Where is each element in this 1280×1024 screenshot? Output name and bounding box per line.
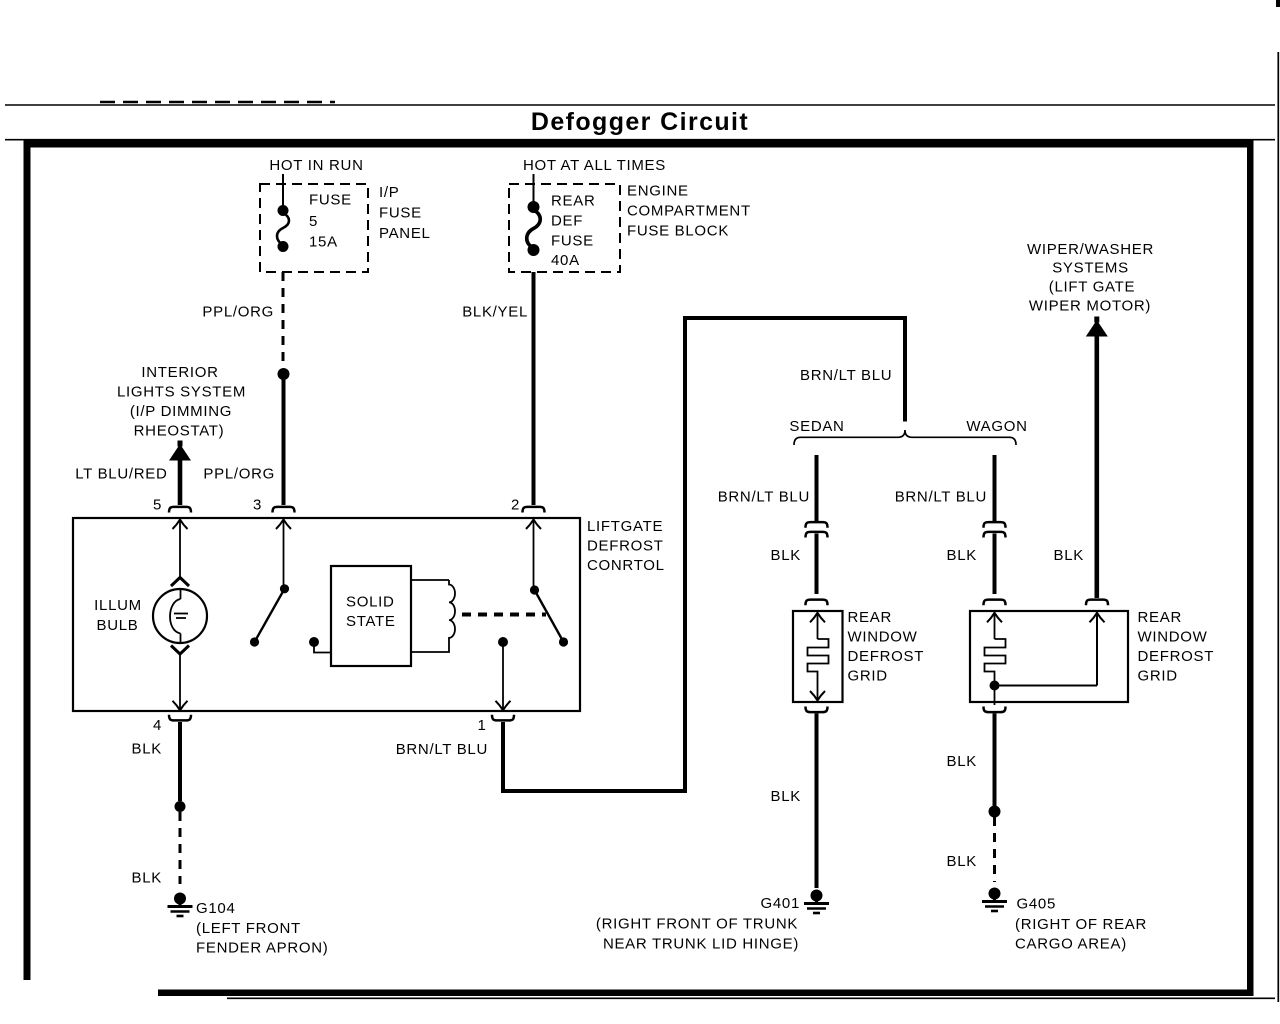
svg-text:G104: G104 bbox=[196, 900, 236, 917]
svg-text:REAR: REAR bbox=[1138, 609, 1182, 626]
svg-text:WINDOW: WINDOW bbox=[848, 628, 918, 645]
svg-text:5: 5 bbox=[309, 213, 318, 230]
svg-text:FENDER APRON): FENDER APRON) bbox=[196, 940, 328, 957]
svg-text:5: 5 bbox=[153, 497, 162, 514]
svg-text:BULB: BULB bbox=[97, 617, 139, 634]
svg-text:SEDAN: SEDAN bbox=[789, 418, 844, 435]
svg-text:LIGHTS SYSTEM: LIGHTS SYSTEM bbox=[117, 384, 246, 401]
svg-text:2: 2 bbox=[511, 497, 520, 514]
svg-text:15A: 15A bbox=[309, 234, 338, 251]
svg-text:WAGON: WAGON bbox=[966, 418, 1027, 435]
svg-text:GRID: GRID bbox=[1138, 668, 1178, 685]
svg-text:(LEFT FRONT: (LEFT FRONT bbox=[196, 920, 301, 937]
svg-text:BLK: BLK bbox=[771, 547, 801, 564]
svg-text:BLK: BLK bbox=[947, 547, 977, 564]
svg-text:RHEOSTAT): RHEOSTAT) bbox=[134, 423, 225, 440]
svg-text:LT BLU/RED: LT BLU/RED bbox=[75, 466, 167, 483]
svg-text:BLK: BLK bbox=[132, 741, 162, 758]
svg-text:FUSE: FUSE bbox=[379, 205, 422, 222]
svg-text:REAR: REAR bbox=[551, 193, 595, 210]
svg-text:(LIFT GATE: (LIFT GATE bbox=[1049, 279, 1135, 296]
svg-text:FUSE: FUSE bbox=[309, 192, 352, 209]
svg-text:PPL/ORG: PPL/ORG bbox=[203, 466, 275, 483]
svg-text:REAR: REAR bbox=[848, 609, 892, 626]
svg-text:I/P: I/P bbox=[379, 184, 399, 201]
svg-text:3: 3 bbox=[253, 497, 262, 514]
svg-text:SOLID: SOLID bbox=[346, 593, 395, 610]
svg-text:BRN/LT BLU: BRN/LT BLU bbox=[718, 489, 810, 506]
svg-text:LIFTGATE: LIFTGATE bbox=[587, 518, 663, 535]
svg-text:BLK: BLK bbox=[1054, 547, 1084, 564]
svg-text:SYSTEMS: SYSTEMS bbox=[1052, 260, 1129, 277]
svg-text:(RIGHT FRONT OF TRUNK: (RIGHT FRONT OF TRUNK bbox=[596, 916, 798, 933]
svg-text:CONRTOL: CONRTOL bbox=[587, 557, 665, 574]
svg-text:HOT IN RUN: HOT IN RUN bbox=[269, 157, 363, 174]
svg-text:NEAR TRUNK LID HINGE): NEAR TRUNK LID HINGE) bbox=[603, 936, 799, 953]
svg-text:PANEL: PANEL bbox=[379, 225, 431, 242]
svg-text:BRN/LT BLU: BRN/LT BLU bbox=[800, 367, 892, 384]
svg-text:HOT AT ALL TIMES: HOT AT ALL TIMES bbox=[523, 157, 666, 174]
svg-text:INTERIOR: INTERIOR bbox=[141, 364, 218, 381]
svg-text:WINDOW: WINDOW bbox=[1138, 628, 1208, 645]
svg-text:WIPER MOTOR): WIPER MOTOR) bbox=[1029, 298, 1151, 315]
svg-text:40A: 40A bbox=[551, 252, 580, 269]
svg-text:(RIGHT OF REAR: (RIGHT OF REAR bbox=[1015, 916, 1147, 933]
svg-text:FUSE: FUSE bbox=[551, 233, 594, 250]
svg-text:ENGINE: ENGINE bbox=[627, 183, 689, 200]
svg-text:PPL/ORG: PPL/ORG bbox=[202, 304, 274, 321]
svg-text:ILLUM: ILLUM bbox=[94, 597, 142, 614]
svg-text:WIPER/WASHER: WIPER/WASHER bbox=[1027, 241, 1154, 258]
svg-text:STATE: STATE bbox=[346, 613, 396, 630]
svg-text:(I/P DIMMING: (I/P DIMMING bbox=[130, 403, 232, 420]
svg-text:DEFROST: DEFROST bbox=[848, 648, 925, 665]
svg-text:G405: G405 bbox=[1017, 896, 1057, 913]
svg-text:BRN/LT BLU: BRN/LT BLU bbox=[895, 489, 987, 506]
svg-text:DEF: DEF bbox=[551, 213, 583, 230]
svg-text:Defogger Circuit: Defogger Circuit bbox=[531, 108, 749, 136]
svg-text:4: 4 bbox=[153, 717, 162, 734]
svg-text:BLK: BLK bbox=[947, 753, 977, 770]
svg-text:BLK: BLK bbox=[771, 788, 801, 805]
svg-text:FUSE BLOCK: FUSE BLOCK bbox=[627, 223, 729, 240]
svg-text:BLK: BLK bbox=[947, 853, 977, 870]
svg-text:DEFROST: DEFROST bbox=[587, 538, 664, 555]
svg-text:1: 1 bbox=[477, 717, 486, 734]
svg-text:BLK: BLK bbox=[132, 870, 162, 887]
svg-text:BRN/LT BLU: BRN/LT BLU bbox=[396, 741, 488, 758]
svg-text:G401: G401 bbox=[761, 895, 801, 912]
svg-text:BLK/YEL: BLK/YEL bbox=[462, 304, 528, 321]
svg-text:GRID: GRID bbox=[848, 668, 888, 685]
svg-text:CARGO AREA): CARGO AREA) bbox=[1015, 936, 1127, 953]
svg-text:DEFROST: DEFROST bbox=[1138, 648, 1215, 665]
svg-text:COMPARTMENT: COMPARTMENT bbox=[627, 203, 751, 220]
